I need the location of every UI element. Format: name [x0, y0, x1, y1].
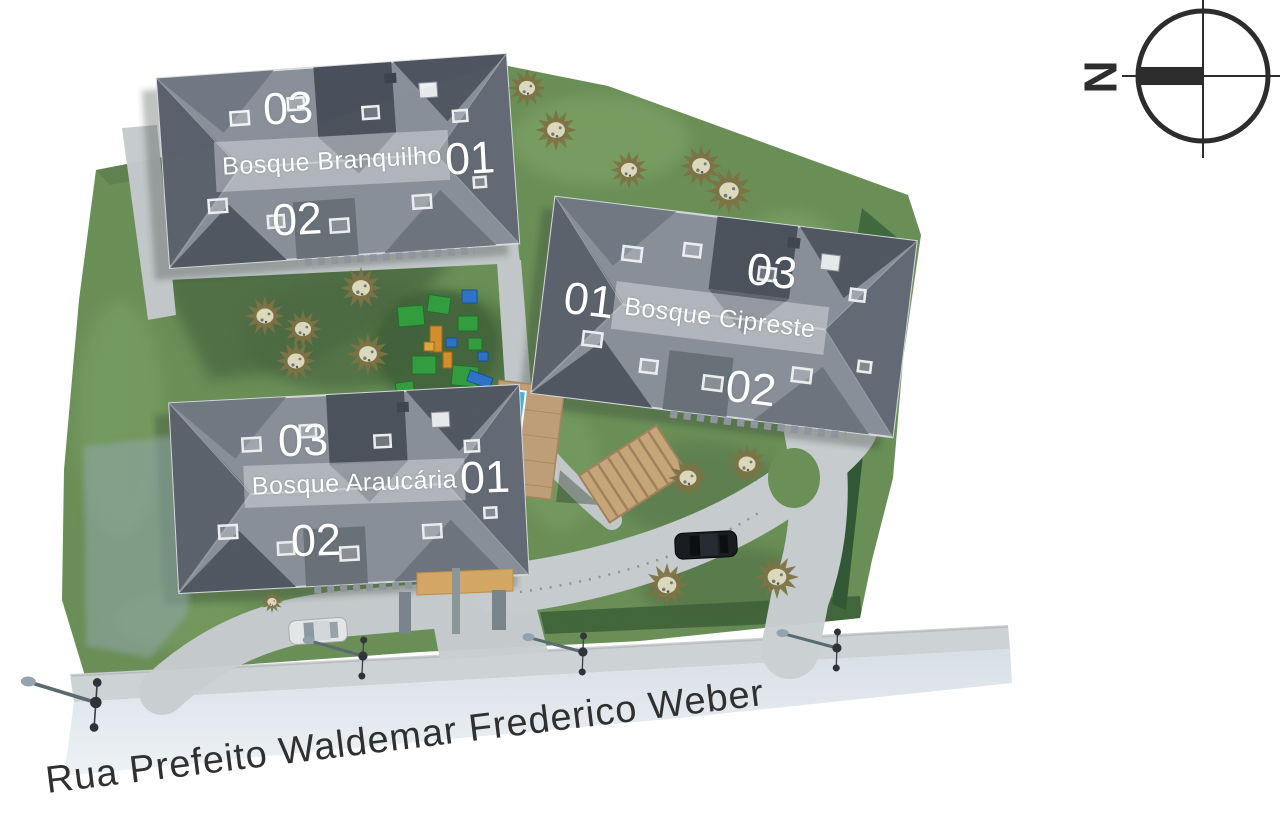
unit-number-branquilho-01: 01 — [444, 134, 496, 182]
compass-north-label: N — [1074, 60, 1128, 93]
unit-number-branquilho-02: 02 — [271, 195, 323, 243]
unit-number-branquilho-03: 03 — [262, 84, 314, 132]
unit-number-cipreste-01: 01 — [561, 275, 616, 326]
building-label-araucaria: Bosque Araucária — [243, 458, 465, 508]
unit-number-araucaria-03: 03 — [277, 417, 329, 464]
unit-number-cipreste-02: 02 — [723, 363, 778, 414]
unit-number-cipreste-03: 03 — [744, 246, 799, 297]
unit-number-araucaria-02: 02 — [290, 517, 342, 564]
unit-number-araucaria-01: 01 — [459, 454, 511, 501]
site-plan-page: Bosque Branquilho Bosque Cipreste Bosque… — [0, 0, 1280, 818]
